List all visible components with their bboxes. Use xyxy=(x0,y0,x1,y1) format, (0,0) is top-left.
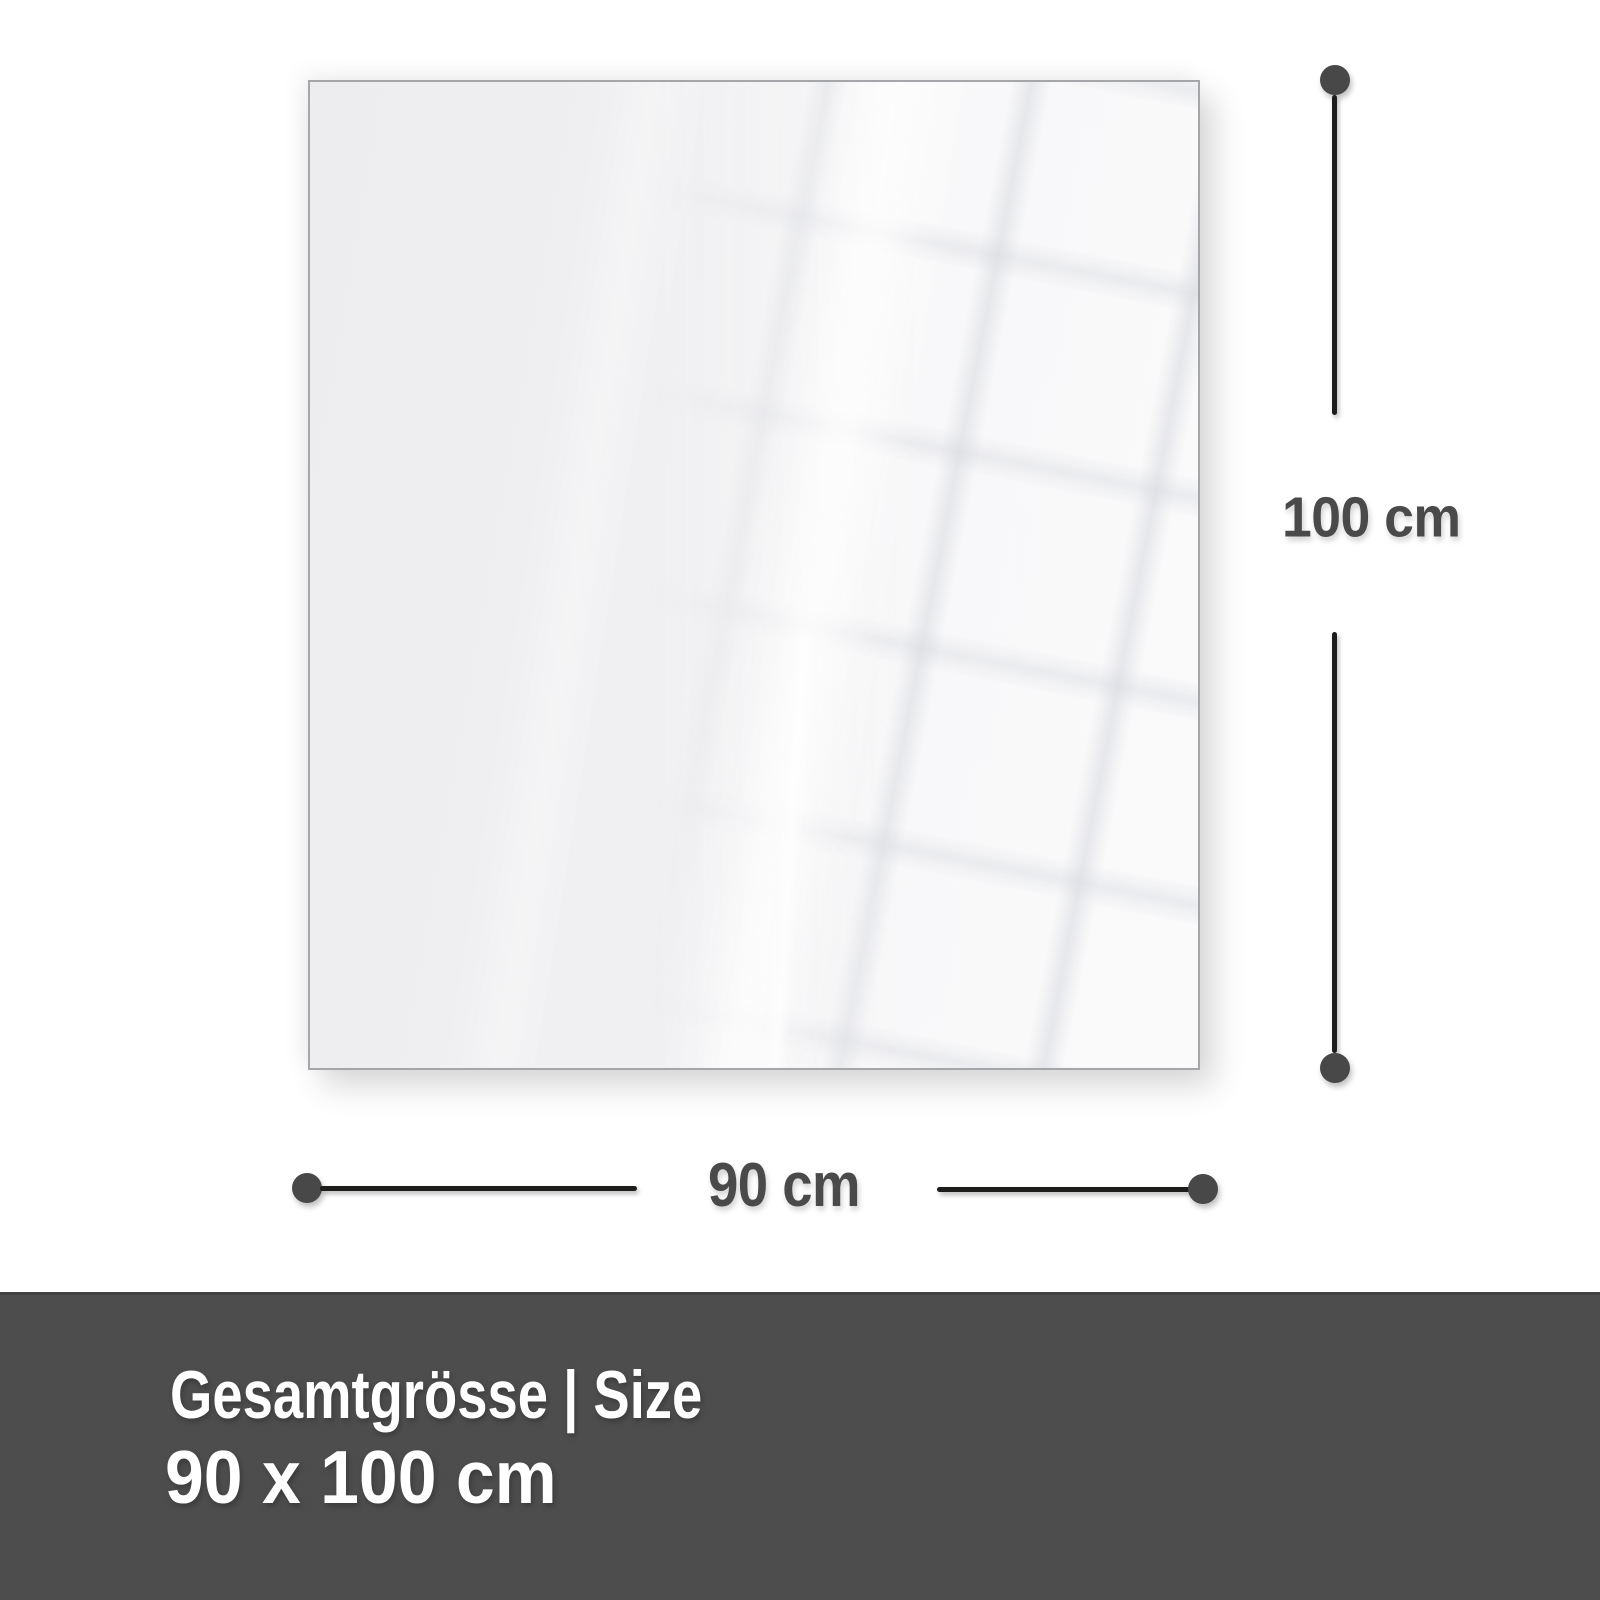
footer-heading: Gesamtgrösse | Size xyxy=(170,1361,702,1429)
dimension-endpoint-dot-bottom xyxy=(1320,1053,1350,1083)
vertical-dimension-line-lower xyxy=(1332,632,1337,1053)
horizontal-dimension-label: 90 cm xyxy=(708,1155,860,1217)
horizontal-dimension-line-right xyxy=(937,1187,1190,1192)
vertical-dimension-label: 100 cm xyxy=(1282,490,1461,547)
dimension-endpoint-dot-right xyxy=(1188,1174,1218,1204)
glass-panel xyxy=(308,80,1200,1070)
size-footer-bar: Gesamtgrösse | Size 90 x 100 cm xyxy=(0,1292,1600,1600)
dimension-endpoint-dot-top xyxy=(1320,65,1350,95)
dimension-endpoint-dot-left xyxy=(292,1173,322,1203)
footer-size-value: 90 x 100 cm xyxy=(165,1440,557,1515)
vertical-dimension-line-upper xyxy=(1332,95,1337,415)
horizontal-dimension-line-left xyxy=(320,1186,637,1191)
